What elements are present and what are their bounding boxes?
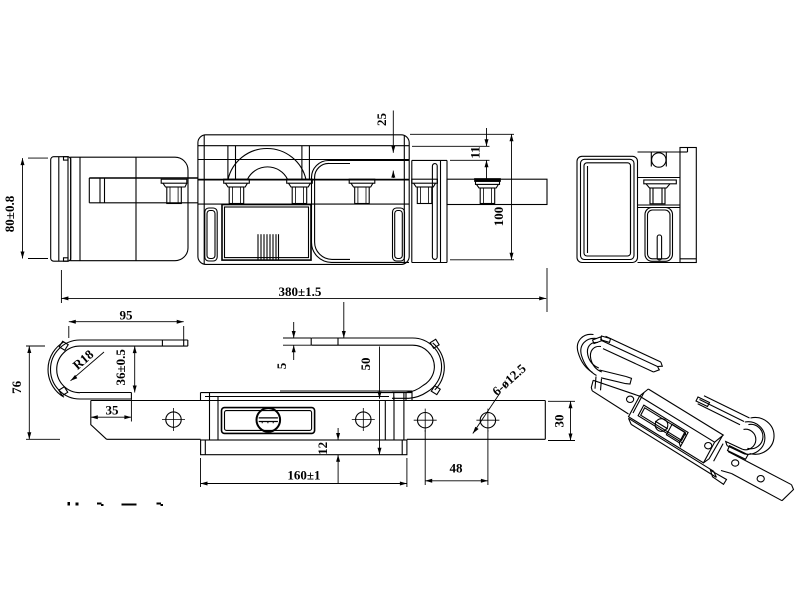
svg-text:80±0.8: 80±0.8 xyxy=(2,195,17,232)
svg-text:48: 48 xyxy=(450,461,464,476)
svg-text:12: 12 xyxy=(315,442,330,455)
svg-text:50: 50 xyxy=(358,358,373,371)
svg-text:25: 25 xyxy=(374,113,389,127)
svg-text:35: 35 xyxy=(106,403,120,418)
svg-text:5: 5 xyxy=(274,362,289,369)
svg-text:160±1: 160±1 xyxy=(287,468,320,483)
svg-text:100: 100 xyxy=(491,207,506,227)
svg-text:11: 11 xyxy=(468,146,483,158)
svg-text:380±1.5: 380±1.5 xyxy=(279,284,322,299)
svg-text:36±0.5: 36±0.5 xyxy=(113,349,128,386)
svg-text:95: 95 xyxy=(120,308,134,323)
svg-text:76: 76 xyxy=(9,380,24,394)
svg-text:30: 30 xyxy=(552,415,567,428)
